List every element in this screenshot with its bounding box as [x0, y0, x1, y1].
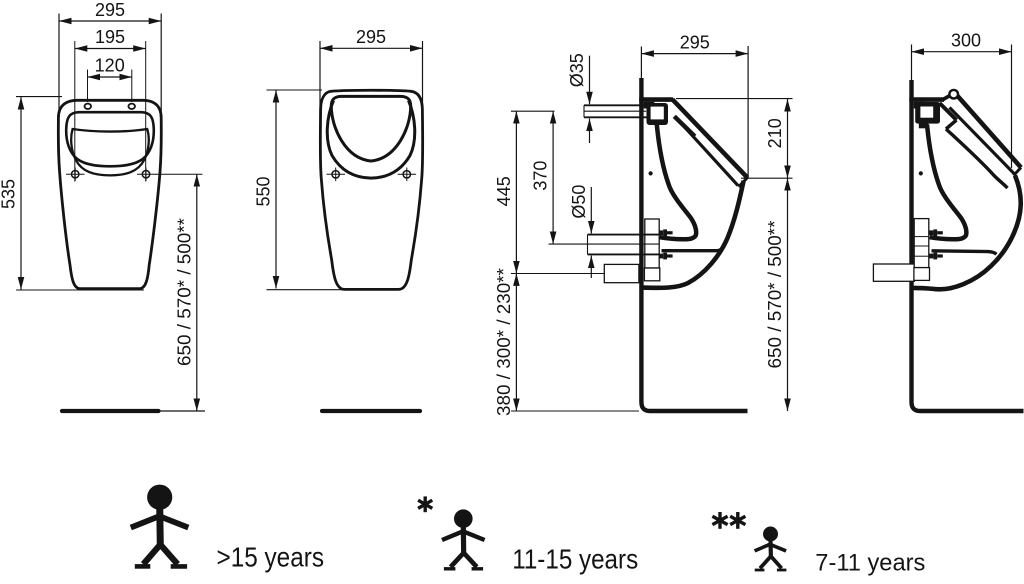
svg-text:210: 210 [765, 118, 785, 148]
svg-text:295: 295 [680, 32, 710, 52]
svg-text:195: 195 [95, 27, 125, 47]
svg-text:380 / 300* / 230**: 380 / 300* / 230** [494, 268, 514, 416]
svg-text:300: 300 [951, 30, 981, 50]
svg-text:7-11 years: 7-11 years [815, 550, 925, 577]
svg-text:Ø50: Ø50 [569, 185, 589, 219]
svg-text:295: 295 [356, 27, 386, 47]
svg-text:650 / 570* / 500**: 650 / 570* / 500** [174, 218, 194, 366]
svg-text:Ø35: Ø35 [567, 53, 587, 87]
svg-text:120: 120 [95, 56, 125, 76]
svg-text:370: 370 [531, 161, 551, 191]
svg-text:>15 years: >15 years [217, 541, 325, 572]
svg-text:550: 550 [254, 176, 274, 206]
svg-text:650 / 570* / 500**: 650 / 570* / 500** [765, 221, 785, 369]
svg-text:445: 445 [494, 176, 514, 206]
svg-text:11-15 years: 11-15 years [512, 543, 638, 574]
svg-text:295: 295 [95, 0, 125, 20]
svg-text:535: 535 [0, 179, 19, 209]
